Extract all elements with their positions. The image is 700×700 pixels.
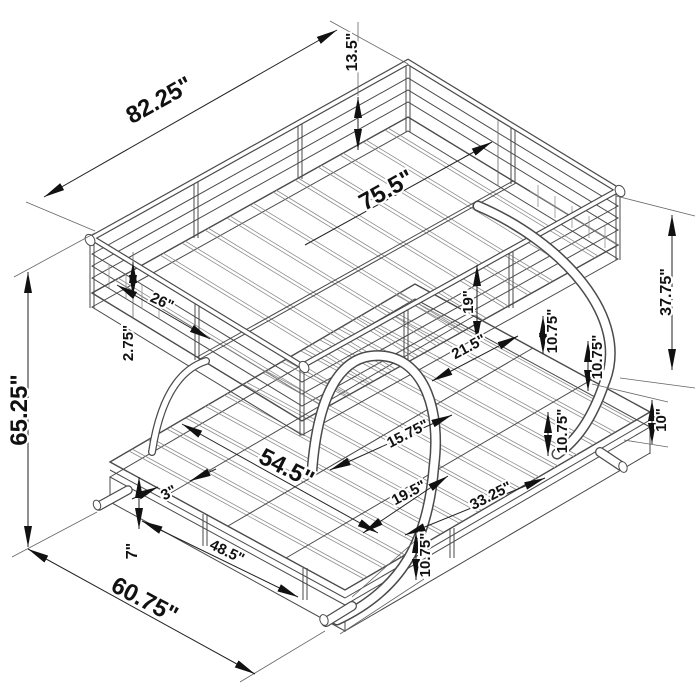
dimline-48-5 — [142, 521, 298, 597]
dim-label-10-75in-d: 10.75" — [417, 533, 434, 578]
dim-label-13-5in: 13.5" — [344, 33, 361, 72]
dim-label-2-75in: 2.75" — [120, 325, 137, 361]
dimline-82-25 — [44, 30, 337, 197]
dim-label-33-25in: 33.25" — [467, 478, 515, 513]
dim-label-3in: 3" — [158, 482, 180, 504]
dim-label-7in: 7" — [124, 543, 141, 559]
dim-label-19in: 19" — [460, 290, 477, 314]
foot-right — [600, 452, 629, 474]
dim-label-10-75in-b: 10.75" — [589, 335, 606, 380]
dim-label-19-5in: 19.5" — [389, 477, 429, 509]
futon-deck — [110, 284, 650, 632]
dimension-labels: 82.25" 13.5" 75.5" 65.25" 26" 2.75" 19" … — [6, 33, 675, 629]
dim-label-10in: 10" — [653, 408, 670, 432]
diagram-canvas: 82.25" 13.5" 75.5" 65.25" 26" 2.75" 19" … — [0, 0, 700, 700]
dim-label-60-75in: 60.75" — [107, 572, 183, 629]
c-leg-left-fragment — [152, 361, 206, 452]
dim-label-10-75in-a: 10.75" — [544, 309, 561, 354]
dim-label-37-75in: 37.75" — [658, 268, 675, 316]
bunkbed-dimension-diagram: 82.25" 13.5" 75.5" 65.25" 26" 2.75" 19" … — [0, 0, 700, 700]
dim-label-10-75in-c: 10.75" — [554, 409, 571, 454]
dim-label-82-25in: 82.25" — [122, 71, 198, 129]
dim-label-65-25in: 65.25" — [6, 374, 33, 445]
